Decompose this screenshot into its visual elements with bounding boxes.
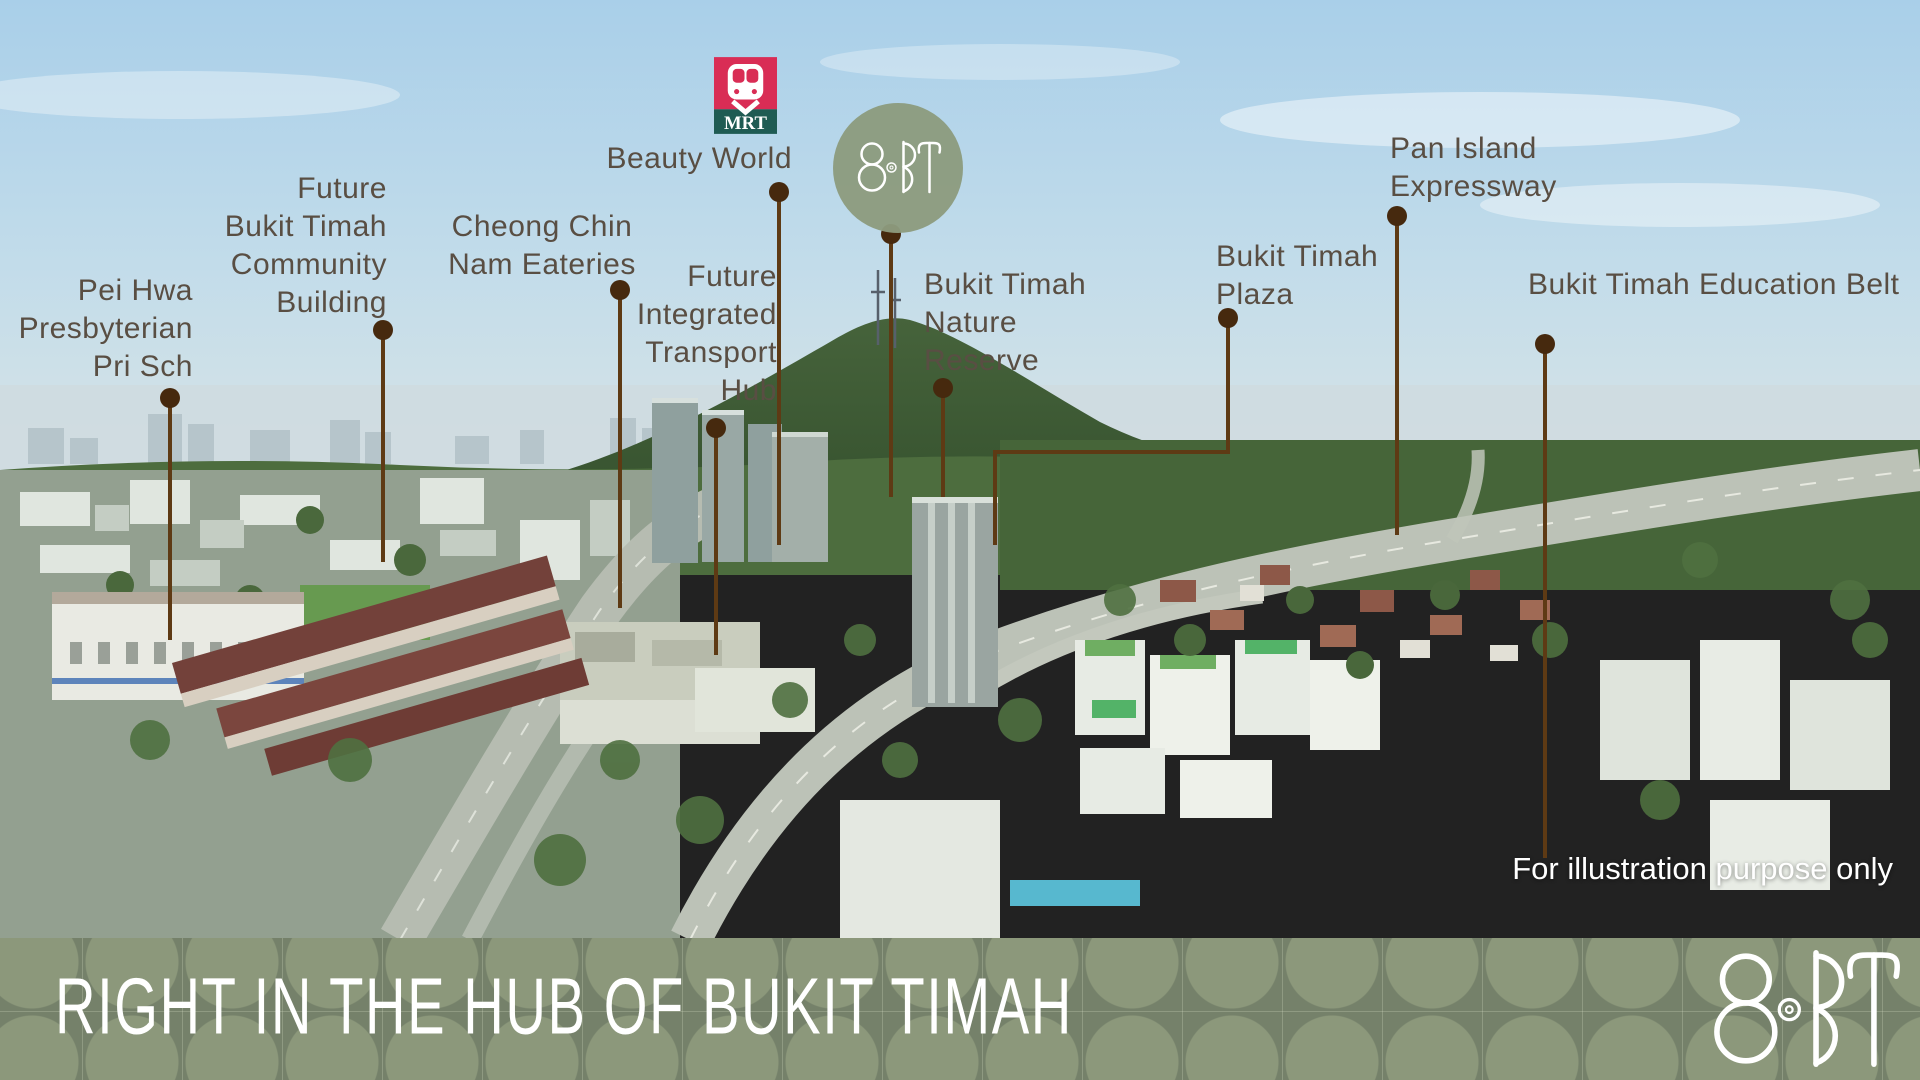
aerial-map-poster: Pei HwaPresbyterianPri SchFutureBukit Ti… xyxy=(0,0,1920,1080)
banner-title: RIGHT IN THE HUB OF BUKIT TIMAH xyxy=(55,960,1073,1052)
banner-8bt-logo xyxy=(1708,946,1904,1071)
svg-text:MRT: MRT xyxy=(724,113,767,134)
beauty-world-centre xyxy=(560,622,815,744)
marker-label-pan-island-expressway: Pan IslandExpressway xyxy=(1390,130,1557,206)
marker-label-pei-hwa-presbyterian-pri-sch: Pei HwaPresbyterianPri Sch xyxy=(19,272,193,386)
marker-label-bukit-timah-education-belt: Bukit Timah Education Belt xyxy=(1528,266,1900,304)
far-right-condos xyxy=(1600,622,1890,890)
marker-label-cheong-chin-nam-eateries: Cheong ChinNam Eateries xyxy=(448,208,636,284)
disclaimer-text: For illustration purpose only xyxy=(1512,851,1893,887)
marker-label-bukit-timah-nature-reserve: Bukit TimahNatureReserve xyxy=(924,266,1086,380)
marker-label-beauty-world-mrt: Beauty World xyxy=(606,140,792,178)
marker-label-bukit-timah-plaza: Bukit TimahPlaza xyxy=(1216,238,1378,314)
project-logo-badge xyxy=(833,103,963,233)
mrt-station-badge: MRT xyxy=(714,57,777,134)
mrt-train-icon: MRT xyxy=(714,57,777,134)
marker-label-future-integrated-transport-hub: FutureIntegratedTransportHub xyxy=(637,258,777,410)
bottom-banner: RIGHT IN THE HUB OF BUKIT TIMAH xyxy=(0,938,1920,1080)
marker-label-future-bukit-timah-community-building: FutureBukit TimahCommunityBuilding xyxy=(225,170,387,322)
